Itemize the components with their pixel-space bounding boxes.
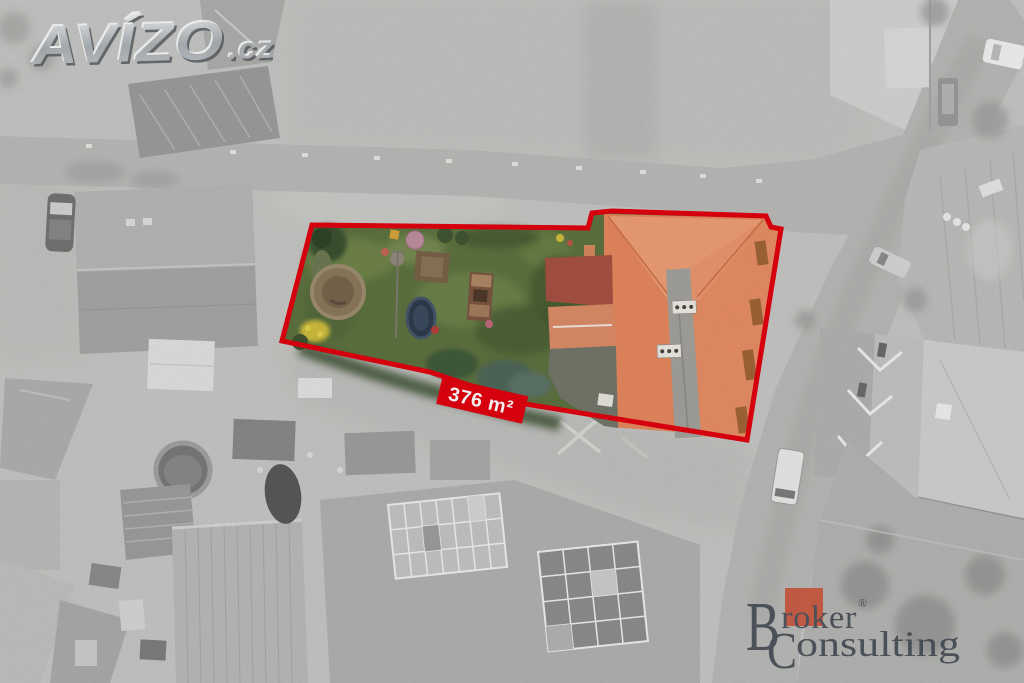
aerial-photo: 376 m² AVÍZO.cz AVÍZO.cz AVÍZO.cz Broker…: [0, 0, 1024, 683]
consulting-rest: onsulting: [796, 624, 960, 664]
avizo-suffix: .cz: [226, 32, 278, 66]
avizo-brand: AVÍZO: [28, 9, 231, 76]
consulting-initial: C: [767, 623, 797, 680]
grain-overlay: [0, 0, 1024, 683]
registered-mark: ®: [858, 596, 867, 610]
